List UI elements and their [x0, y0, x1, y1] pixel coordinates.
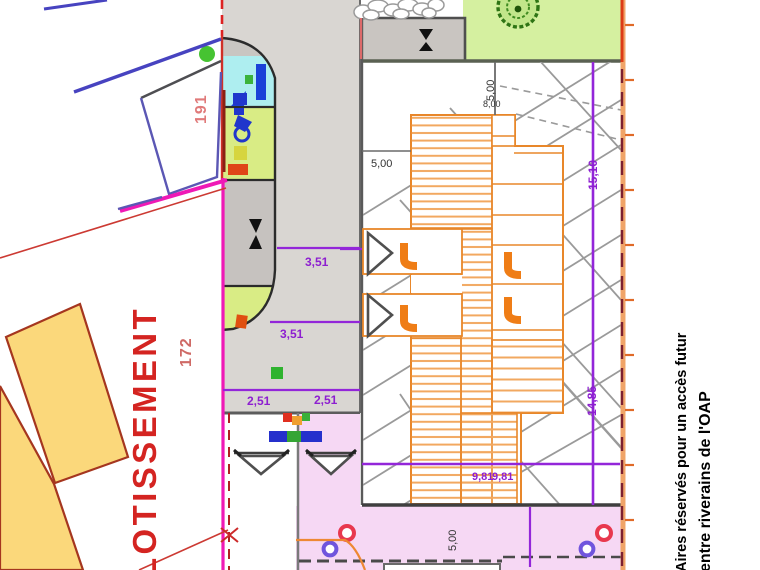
svg-text:3,51: 3,51 — [280, 327, 304, 341]
svg-text:2,51: 2,51 — [314, 393, 338, 407]
svg-text:entre riverains de l'OAP: entre riverains de l'OAP — [697, 391, 714, 570]
svg-text:15,10: 15,10 — [586, 160, 600, 190]
svg-text:14,85: 14,85 — [585, 386, 599, 416]
svg-text:9,81: 9,81 — [492, 471, 513, 483]
svg-text:5,00: 5,00 — [447, 530, 459, 551]
svg-text:5,00: 5,00 — [485, 80, 497, 101]
svg-text:191: 191 — [193, 94, 210, 124]
svg-text:9,81: 9,81 — [472, 471, 493, 483]
svg-text:5,00: 5,00 — [371, 158, 392, 170]
svg-text:Aires réservés pour un accès f: Aires réservés pour un accès futur — [674, 332, 690, 570]
svg-text:8,00: 8,00 — [483, 99, 501, 109]
svg-text:172: 172 — [178, 337, 195, 367]
svg-text:2,51: 2,51 — [247, 394, 271, 408]
svg-text:LOTISSEMENT: LOTISSEMENT — [126, 306, 163, 570]
svg-text:3,51: 3,51 — [305, 255, 329, 269]
